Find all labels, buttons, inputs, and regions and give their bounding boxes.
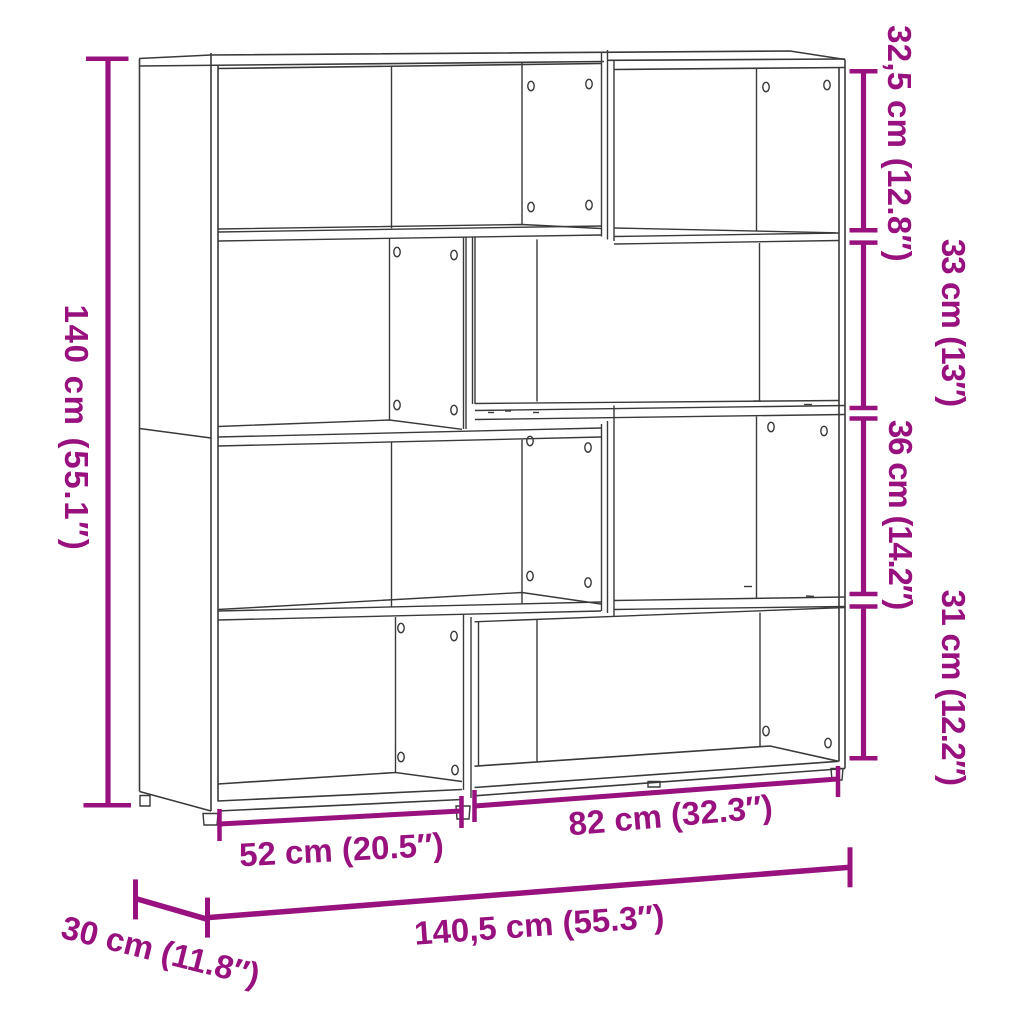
svg-text:33 cm (13″): 33 cm (13″) (935, 239, 972, 406)
svg-text:31 cm (12.2″): 31 cm (12.2″) (935, 590, 972, 786)
svg-text:32,5 cm (12.8″): 32,5 cm (12.8″) (881, 25, 918, 262)
svg-text:36 cm (14.2″): 36 cm (14.2″) (882, 420, 919, 609)
svg-text:140 cm (55.1″): 140 cm (55.1″) (58, 305, 95, 552)
